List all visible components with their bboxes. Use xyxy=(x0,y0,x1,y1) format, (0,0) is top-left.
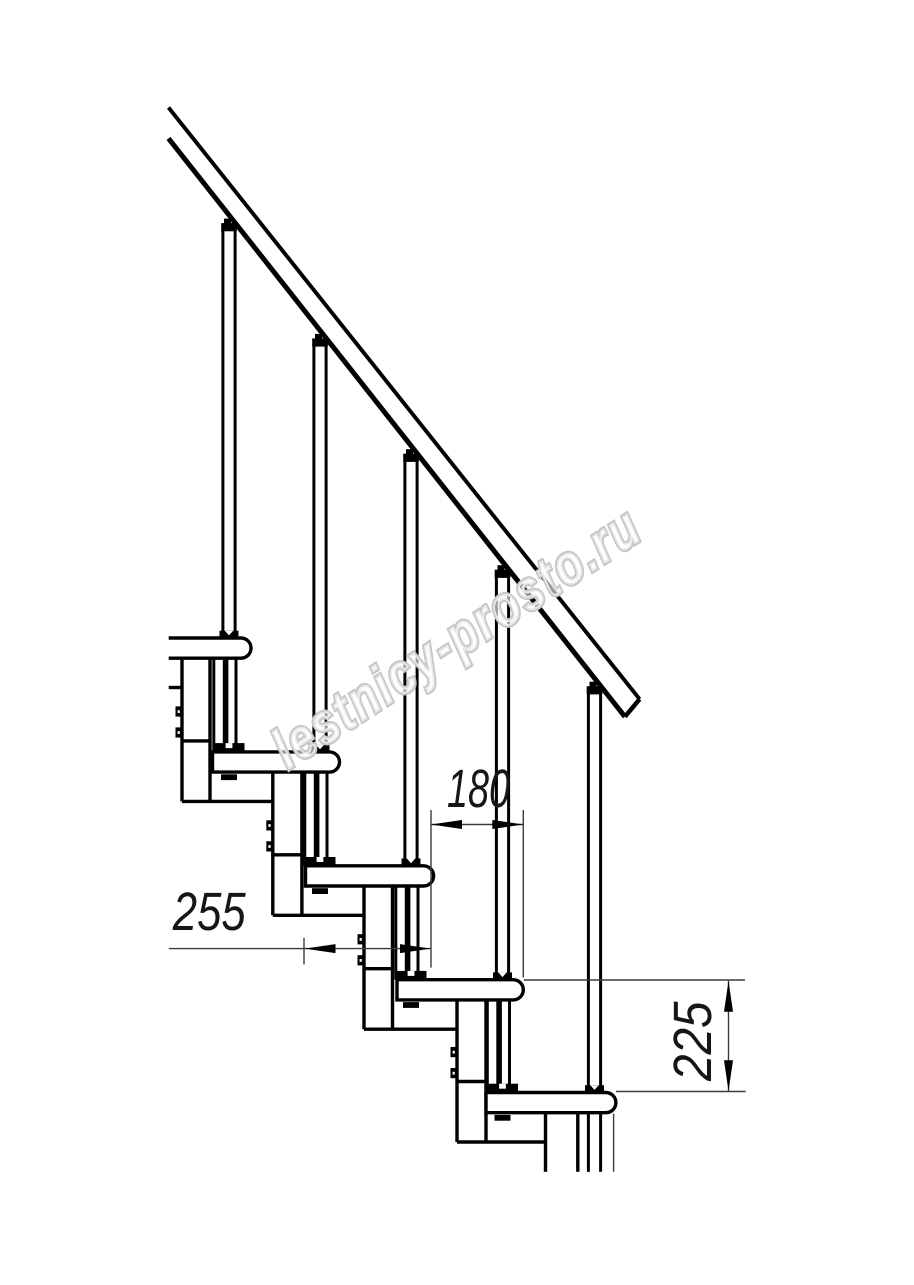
svg-text:180: 180 xyxy=(447,759,510,819)
svg-text:255: 255 xyxy=(172,882,246,942)
svg-text:225: 225 xyxy=(663,1001,723,1082)
